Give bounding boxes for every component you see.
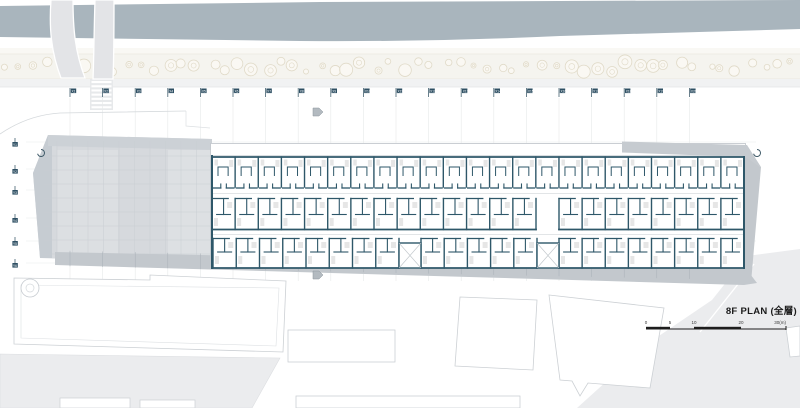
tree-symbol — [399, 64, 412, 77]
tree-symbol — [265, 65, 277, 77]
x-grid-label: X20 — [691, 89, 697, 93]
x-grid-label: X14 — [495, 89, 501, 93]
crosswalk — [90, 79, 113, 110]
tree-symbol — [716, 65, 723, 72]
tree-symbol — [677, 57, 688, 68]
tree-symbol — [415, 58, 423, 66]
tree-symbol — [43, 57, 52, 66]
tree-symbol — [29, 62, 37, 70]
x-grid-flag: X8 — [298, 88, 304, 97]
context-circular-feature — [21, 279, 39, 297]
x-grid-label: X16 — [561, 89, 567, 93]
scale-label: 5 — [669, 320, 672, 325]
x-grid-label: X15 — [528, 89, 534, 93]
tree-symbol — [165, 60, 177, 72]
tree-symbol — [340, 63, 353, 76]
x-grid-flag: X16 — [559, 88, 566, 97]
tree-symbol — [577, 65, 590, 78]
x-grid-label: X10 — [365, 89, 371, 93]
tree-symbol — [508, 68, 514, 74]
x-grid-label: X4 — [169, 89, 173, 93]
stair-core — [399, 243, 421, 268]
x-grid-label: X5 — [202, 89, 206, 93]
tree-symbol — [773, 59, 782, 68]
tree-symbol — [483, 65, 491, 73]
x-grid-label: X2 — [104, 89, 108, 93]
y-grid-flag: Y6 — [12, 259, 17, 268]
tree-symbol — [787, 59, 793, 65]
floor-plan-sheet: X1X2X3X4X5X6X7X8X9X10X11X12X13X14X15X16X… — [0, 0, 800, 408]
tree-symbol — [15, 64, 21, 70]
tree-symbol — [211, 60, 220, 69]
y-grid-label: Y2 — [13, 170, 17, 174]
tree-symbol — [277, 57, 285, 65]
x-grid-flag: X1 — [70, 88, 76, 97]
tree-symbol — [149, 66, 158, 75]
tree-symbol — [286, 60, 297, 71]
x-grid-flag: X7 — [266, 88, 272, 97]
x-grid-flag: X11 — [396, 88, 403, 97]
tree-strip — [0, 48, 800, 79]
river-band — [0, 0, 800, 41]
x-grid-label: X17 — [593, 89, 599, 93]
x-grid-label: X18 — [626, 89, 632, 93]
x-grid-flag: X19 — [657, 88, 664, 97]
tree-symbol — [303, 69, 308, 74]
tree-symbol — [457, 58, 466, 67]
tree-symbol — [592, 63, 604, 75]
y-grid-flag: Y1 — [12, 138, 17, 147]
tree-symbol — [749, 59, 757, 67]
street-band — [0, 79, 800, 87]
x-grid-flag: X9 — [331, 88, 337, 97]
x-grid-flag: X14 — [494, 88, 501, 97]
tree-symbol — [445, 59, 451, 65]
y-grid-label: Y1 — [13, 143, 17, 147]
x-grid-flag: X20 — [689, 88, 696, 97]
tree-symbol — [635, 59, 647, 71]
x-grid-flag: X12 — [429, 88, 436, 97]
y-grid-flag: Y5 — [12, 237, 17, 246]
context-southwest — [0, 275, 286, 408]
curb-lines — [0, 111, 210, 134]
section-arrow-icon — [313, 108, 323, 116]
y-grid-flag: Y4 — [12, 214, 17, 223]
tree-symbol — [537, 60, 547, 70]
y-grid-label: Y5 — [13, 242, 17, 246]
tree-symbol — [1, 64, 7, 70]
x-grid-flag: X17 — [592, 88, 599, 97]
tree-symbol — [425, 61, 432, 68]
tree-symbol — [565, 60, 578, 73]
tree-symbol — [320, 63, 326, 69]
tree-symbol — [618, 55, 632, 69]
tree-symbol — [231, 58, 243, 70]
tree-symbol — [764, 64, 770, 70]
tree-symbol — [500, 64, 507, 71]
tree-symbol — [554, 63, 560, 69]
x-grid-label: X7 — [267, 89, 271, 93]
x-grid-label: X6 — [235, 89, 239, 93]
x-grid-flag: X15 — [526, 88, 533, 97]
y-grid-label: Y3 — [13, 191, 17, 195]
x-grid-label: X13 — [463, 89, 469, 93]
context-building-tilted — [549, 295, 664, 396]
scale-label: 30(m) — [774, 320, 786, 325]
tree-symbol — [176, 59, 185, 68]
tree-symbol — [330, 65, 340, 75]
tree-symbol — [385, 59, 391, 65]
ramp-east — [93, 0, 114, 79]
tree-symbol — [607, 67, 618, 78]
x-grid-flag: X18 — [624, 88, 631, 97]
tree-symbol — [658, 60, 667, 69]
stair-core — [537, 243, 559, 268]
title-block: 8F PLAN (全層) — [726, 305, 797, 317]
tree-symbol — [138, 62, 144, 68]
tree-symbol — [688, 63, 696, 71]
podium-roof — [33, 135, 212, 264]
tree-symbol — [523, 62, 528, 67]
tree-symbol — [729, 66, 739, 76]
tree-symbol — [353, 57, 364, 68]
tree-symbol — [220, 66, 229, 75]
x-grid-label: X8 — [300, 89, 304, 93]
tree-symbol — [244, 63, 257, 76]
tree-symbol — [471, 63, 476, 68]
scale-label: 20 — [738, 320, 744, 325]
tree-symbol — [126, 61, 132, 67]
y-grid-label: Y6 — [13, 264, 17, 268]
y-grid-flag: Y3 — [12, 186, 17, 195]
x-grid-flag: X6 — [233, 88, 239, 97]
x-grid-flag: X3 — [135, 88, 141, 97]
drawing-title: 8F PLAN (全層) — [726, 305, 797, 317]
x-grid-label: X11 — [398, 89, 404, 93]
x-grid-label: X12 — [430, 89, 436, 93]
tree-symbol — [375, 67, 382, 74]
spiral-stair-icon — [754, 149, 761, 156]
tree-symbol — [647, 59, 660, 72]
x-grid-label: X19 — [658, 89, 664, 93]
y-grid-flag: Y2 — [12, 165, 17, 174]
x-grid-flag: X13 — [461, 88, 468, 97]
x-grid-label: X9 — [332, 89, 336, 93]
y-grid-label: Y4 — [13, 219, 17, 223]
scale-label: 10 — [691, 320, 697, 325]
tree-symbol — [710, 64, 715, 69]
x-grid-flag: X10 — [363, 88, 370, 97]
site-plan-drawing: X1X2X3X4X5X6X7X8X9X10X11X12X13X14X15X16X… — [0, 0, 800, 408]
tree-symbol — [188, 60, 199, 71]
x-grid-flag: X4 — [168, 88, 174, 97]
x-grid-label: X3 — [137, 89, 141, 93]
x-grid-flag: X5 — [200, 88, 206, 97]
x-grid-label: X1 — [72, 89, 76, 93]
